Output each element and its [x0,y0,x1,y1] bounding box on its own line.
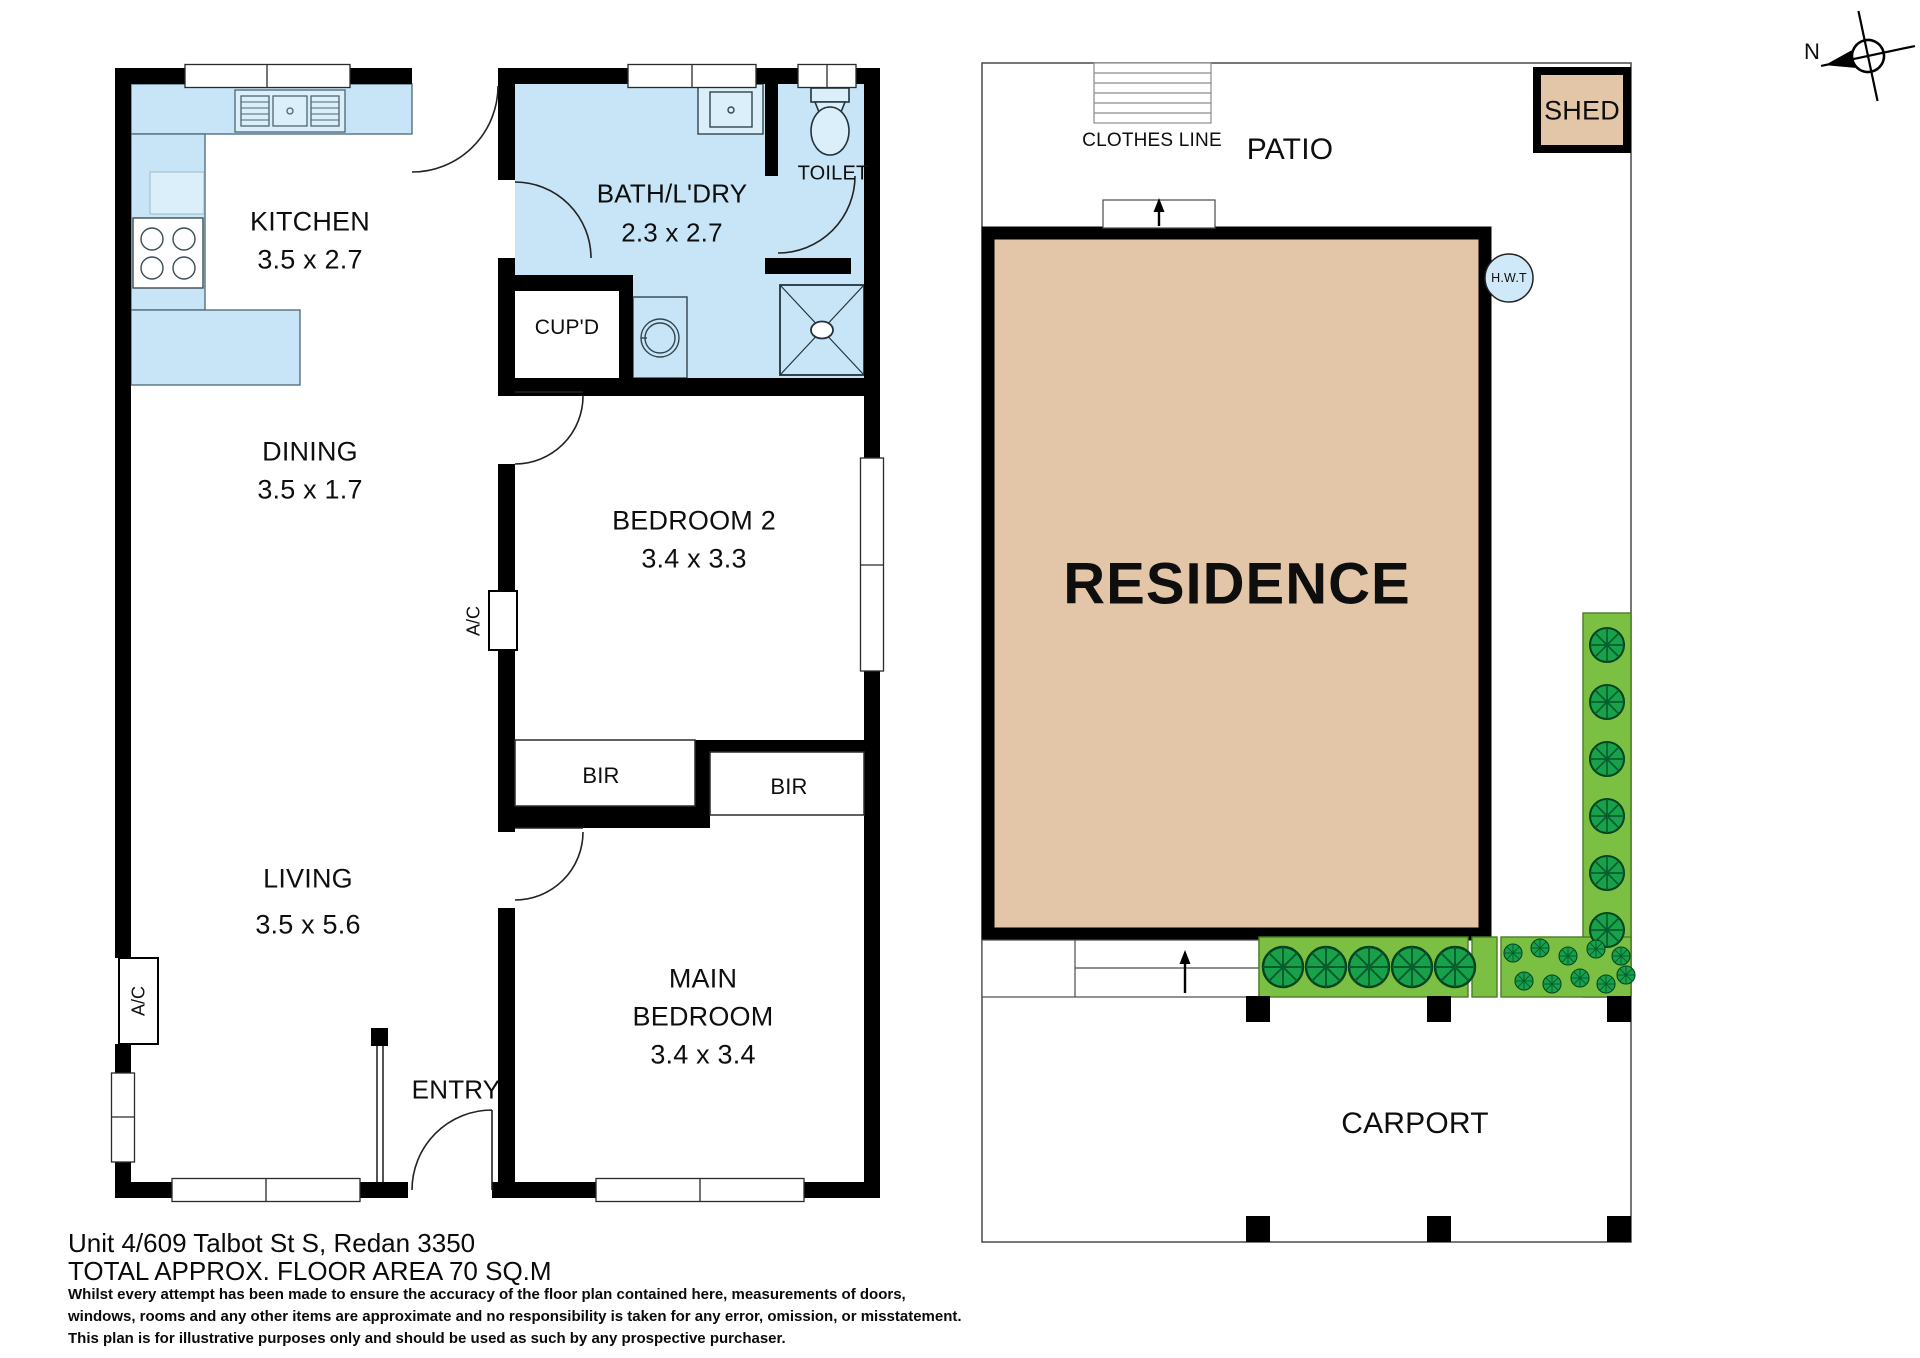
hwt-label: H.W.T [1491,271,1527,285]
toilet-icon [811,88,849,155]
stove-icon [133,218,203,288]
compass-north-label: N [1804,39,1820,65]
rear-step [1103,198,1215,228]
entry-label: ENTRY [412,1075,501,1106]
bath-window [628,65,756,88]
cupboard-label: CUP'D [535,316,600,340]
clothes-line-icon [1094,63,1211,123]
bath-dims: 2.3 x 2.7 [621,218,723,249]
back-door-arc [412,86,498,172]
toilet-label: TOILET [798,163,869,186]
kitchen-label: KITCHEN [250,207,370,238]
residence-label: RESIDENCE [1063,551,1410,618]
entry-partition [371,1028,388,1182]
fridge-space [150,172,204,214]
footer-disclaimer-2: windows, rooms and any other items are a… [68,1308,962,1325]
main-bedroom-door-arc [515,828,583,900]
bedroom2-door-arc [515,392,583,464]
kitchen-sink-icon [235,90,345,132]
bath-label: BATH/L'DRY [597,179,747,210]
bedroom2-dims: 3.4 x 3.3 [641,544,746,575]
footer-disclaimer-3: This plan is for illustrative purposes o… [68,1330,786,1347]
bedroom2-label: BEDROOM 2 [612,506,776,537]
dining-dims: 3.5 x 1.7 [257,475,362,506]
footer-disclaimer-1: Whilst every attempt has been made to en… [68,1286,906,1303]
shed-label: SHED [1544,96,1620,127]
ac-label-living: A/C [129,986,150,1016]
toilet-window [798,65,856,88]
compass-icon [1811,1,1920,111]
footer-area: TOTAL APPROX. FLOOR AREA 70 SQ.M [68,1256,552,1287]
main-bedroom-dims: 3.4 x 3.4 [650,1040,755,1071]
footer-address: Unit 4/609 Talbot St S, Redan 3350 [68,1228,475,1259]
living-front-window [172,1179,360,1202]
kitchen-window [185,65,350,88]
entry-door-arc [412,1110,492,1190]
living-side-window [112,1073,135,1162]
floorplan-canvas [0,0,1920,1358]
bedroom2-window [861,458,884,671]
main-bedroom-window [596,1179,804,1202]
patio-label: PATIO [1247,133,1334,167]
carport-label: CARPORT [1341,1107,1489,1141]
living-dims: 3.5 x 5.6 [255,910,360,941]
kitchen-dims: 3.5 x 2.7 [257,245,362,276]
front-step [982,940,1259,997]
bath-sink-icon [698,84,763,134]
clothes-line-label: CLOTHES LINE [1082,130,1222,152]
bir-left-label: BIR [582,763,619,789]
floorplan-page: KITCHEN 3.5 x 2.7 BATH/L'DRY 2.3 x 2.7 T… [0,0,1920,1358]
living-label: LIVING [263,864,353,895]
dining-label: DINING [262,437,358,468]
main-bedroom-label-2: BEDROOM [633,1002,774,1033]
main-bedroom-label-1: MAIN [669,964,737,995]
ac-label-bedroom2: A/C [464,606,485,636]
ac-unit-bedroom2 [489,591,517,650]
bir-right-label: BIR [770,774,807,800]
